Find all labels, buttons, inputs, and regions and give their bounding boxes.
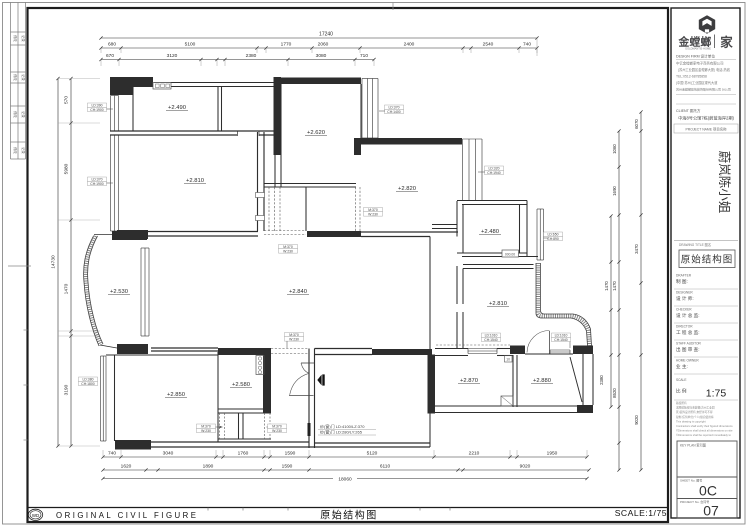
svg-text:+2.480: +2.480 (481, 229, 499, 235)
svg-text:W:230: W:230 (283, 249, 293, 253)
svg-text:(苏州工业园区金螳螂大厦) 电话-热线: (苏州工业园区金螳螂大厦) 电话-热线 (678, 67, 731, 72)
svg-text:+2.810: +2.810 (489, 301, 507, 307)
svg-text:+2.620: +2.620 (307, 130, 325, 136)
svg-text:DESIGNER: DESIGNER (676, 291, 693, 295)
svg-text:工 程 总 监:: 工 程 总 监: (676, 329, 699, 336)
svg-text:1060: 1060 (612, 144, 617, 154)
svg-text:Contractors shall verify their: Contractors shall verify their figured d… (676, 424, 733, 428)
svg-text:SCALE: SCALE (676, 378, 686, 382)
svg-text:000.00: 000.00 (505, 252, 515, 256)
svg-text:18060: 18060 (338, 477, 352, 483)
svg-text:CH:1800: CH:1800 (81, 382, 94, 386)
svg-text:CH:1900: CH:1900 (90, 182, 103, 186)
svg-text:PROJECT NAME 项目名称: PROJECT NAME 项目名称 (685, 127, 727, 132)
svg-text:CH:890: CH:890 (547, 237, 559, 241)
svg-text:区)装饰设计所有,未经许可不得: 区)装饰设计所有,未经许可不得 (676, 410, 713, 414)
svg-text:修改: 修改 (13, 74, 18, 81)
svg-text:WD: WD (32, 513, 39, 518)
svg-text:CH:1540: CH:1540 (554, 338, 567, 342)
svg-text:TEL:0512-68785858: TEL:0512-68785858 (676, 75, 707, 79)
svg-text:出 图 审 查:: 出 图 审 查: (676, 346, 699, 353)
svg-text:+2.810: +2.810 (186, 178, 204, 184)
svg-text:修改: 修改 (13, 35, 18, 42)
svg-text:3040: 3040 (163, 451, 174, 457)
svg-text:原始结构图: 原始结构图 (681, 254, 734, 266)
svg-text:记录: 记录 (21, 111, 26, 118)
svg-text:金螳螂: 金螳螂 (678, 35, 712, 49)
svg-text:原始结构图: 原始结构图 (320, 509, 378, 522)
svg-text:GOLDMANTIS·HOME: GOLDMANTIS·HOME (685, 47, 711, 51)
svg-text:2210: 2210 (469, 451, 480, 457)
svg-text:680: 680 (108, 42, 116, 48)
svg-text:9020: 9020 (634, 415, 639, 425)
svg-text:670: 670 (106, 53, 114, 59)
svg-text:DRAWING TITLE 图名: DRAWING TITLE 图名 (679, 242, 711, 247)
svg-text:W:230: W:230 (289, 337, 299, 341)
svg-text:©Dimensions shall check all di: ©Dimensions shall check all dimensions o… (676, 429, 733, 433)
svg-text:1470: 1470 (604, 281, 609, 291)
svg-text:记录: 记录 (21, 35, 26, 42)
svg-text:记录: 记录 (21, 74, 26, 81)
svg-text:中海8号公馆7栋(蔚蓝海岸2期): 中海8号公馆7栋(蔚蓝海岸2期) (678, 115, 734, 122)
svg-text:蔚岚陈小姐: 蔚岚陈小姐 (717, 151, 732, 214)
svg-text:6110: 6110 (380, 464, 391, 470)
svg-text:1620: 1620 (121, 464, 132, 470)
svg-text:3190: 3190 (64, 384, 70, 395)
svg-text:家: 家 (720, 35, 733, 50)
svg-text:0C: 0C (699, 483, 717, 499)
svg-text:比 例: 比 例 (676, 388, 687, 395)
svg-text:+2.580: +2.580 (232, 382, 250, 388)
svg-text:DRAFTER: DRAFTER (676, 274, 692, 278)
svg-text:业 主:: 业 主: (676, 363, 688, 369)
svg-text:8520: 8520 (612, 388, 617, 398)
svg-text:纱(窗)门 LD:4100/LZ:370: 纱(窗)门 LD:4100/LZ:370 (320, 423, 365, 429)
svg-text:CLIENT 委托方: CLIENT 委托方 (676, 108, 701, 113)
svg-text:+2.820: +2.820 (398, 186, 416, 192)
svg-text:CH:1540: CH:1540 (484, 338, 497, 342)
svg-text:740: 740 (108, 451, 116, 457)
svg-text:9020: 9020 (520, 464, 531, 470)
svg-text:©Dimensions shall be reported: ©Dimensions shall be reported immediatel… (676, 433, 731, 437)
svg-text:设 计 总 监:: 设 计 总 监: (676, 312, 699, 319)
svg-text:5980: 5980 (64, 163, 70, 174)
svg-text:3120: 3120 (167, 53, 178, 59)
svg-text:570: 570 (64, 96, 70, 104)
svg-text:10: 10 (506, 358, 510, 362)
svg-text:1:75: 1:75 (706, 388, 727, 400)
svg-text:6070: 6070 (634, 119, 639, 129)
svg-text:740: 740 (523, 42, 531, 48)
svg-text:+2.880: +2.880 (533, 378, 551, 384)
svg-text:W:230: W:230 (368, 212, 378, 216)
svg-text:CHECKER: CHECKER (676, 308, 692, 312)
svg-text:2380: 2380 (246, 53, 257, 59)
svg-text:CH:1400: CH:1400 (387, 110, 400, 114)
svg-text:+2.870: +2.870 (460, 378, 478, 384)
svg-text:CH:1940: CH:1940 (487, 171, 500, 175)
svg-text:复制·任何单位(个人)擅自使用将: 复制·任何单位(个人)擅自使用将 (676, 415, 714, 419)
svg-text:5100: 5100 (185, 42, 196, 48)
svg-text:本图纸版权归金螳螂(苏州工业园: 本图纸版权归金螳螂(苏州工业园 (676, 406, 715, 410)
svg-text:DIRECTOR: DIRECTOR (676, 325, 693, 329)
svg-text:3470: 3470 (634, 244, 639, 254)
svg-text:W:230: W:230 (201, 429, 211, 433)
svg-text:1950: 1950 (547, 451, 558, 457)
svg-text:1590: 1590 (285, 451, 296, 457)
svg-text:记录: 记录 (21, 147, 26, 154)
svg-text:5120: 5120 (367, 451, 378, 457)
svg-text:修改: 修改 (13, 111, 18, 118)
svg-text:2060: 2060 (318, 42, 329, 48)
svg-text:3080: 3080 (316, 53, 327, 59)
svg-text:HOME OWNER: HOME OWNER (676, 359, 699, 363)
svg-text:1890: 1890 (203, 464, 214, 470)
svg-text:苏州金螳螂建筑装饰股份有限公司 分公司: 苏州金螳螂建筑装饰股份有限公司 分公司 (676, 87, 731, 92)
svg-text:+2.530: +2.530 (110, 289, 128, 295)
svg-text:(中国·苏州)工业园区现代大道: (中国·苏州)工业园区现代大道 (676, 80, 718, 85)
svg-text:KEY PLAN 索引图: KEY PLAN 索引图 (680, 443, 706, 448)
svg-text:17240: 17240 (319, 32, 333, 38)
svg-text:This drawing is copyright: This drawing is copyright (676, 419, 706, 423)
svg-text:+2.840: +2.840 (289, 289, 307, 295)
svg-text:2380: 2380 (599, 375, 604, 385)
svg-text:设 计 师:: 设 计 师: (676, 295, 694, 302)
svg-text:710: 710 (360, 53, 368, 59)
svg-text:1590: 1590 (282, 464, 293, 470)
svg-text:修改: 修改 (13, 147, 18, 154)
svg-text:1760: 1760 (238, 451, 249, 457)
svg-text:2400: 2400 (404, 42, 415, 48)
svg-text:版权所有: 版权所有 (676, 401, 687, 405)
svg-text:1470: 1470 (64, 283, 70, 294)
svg-text:CH:1900: CH:1900 (90, 108, 103, 112)
svg-text:SCALE:1/75: SCALE:1/75 (615, 508, 667, 518)
svg-text:07: 07 (703, 503, 719, 519)
svg-text:+2.490: +2.490 (168, 105, 186, 111)
svg-text:+2.850: +2.850 (167, 392, 185, 398)
svg-text:ORIGINAL CIVIL FIGURE: ORIGINAL CIVIL FIGURE (56, 511, 198, 520)
svg-text:W:230: W:230 (272, 429, 282, 433)
svg-text:制 图:: 制 图: (676, 278, 688, 285)
svg-text:中亿金螳螂家电子商务有限公司: 中亿金螳螂家电子商务有限公司 (676, 61, 723, 66)
svg-text:1690: 1690 (612, 186, 617, 196)
svg-text:DESIGN FIRM 设计单位: DESIGN FIRM 设计单位 (676, 54, 715, 59)
svg-text:1770: 1770 (281, 42, 292, 48)
svg-text:2540: 2540 (483, 42, 494, 48)
svg-text:1470: 1470 (612, 281, 617, 291)
svg-text:STAFF AUDITOR: STAFF AUDITOR (676, 342, 702, 346)
svg-text:14730: 14730 (51, 255, 57, 269)
